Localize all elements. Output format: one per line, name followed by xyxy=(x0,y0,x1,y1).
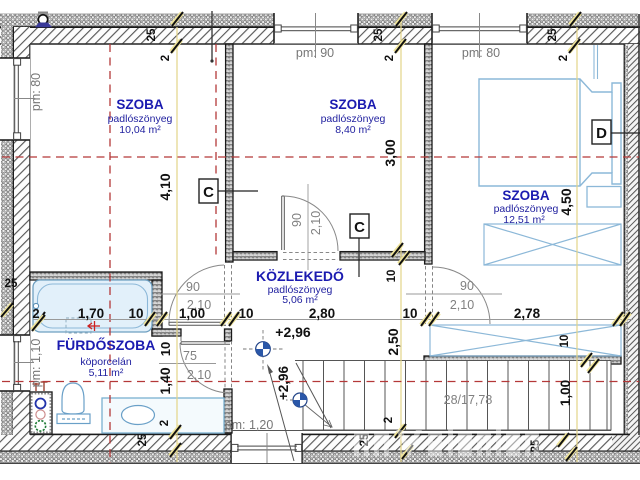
svg-text:4,50: 4,50 xyxy=(558,188,574,215)
svg-text:5,06 m²: 5,06 m² xyxy=(282,294,318,306)
svg-text:+2,96: +2,96 xyxy=(275,324,311,340)
svg-text:SZOBA: SZOBA xyxy=(502,188,550,203)
svg-text:2,10: 2,10 xyxy=(309,211,323,235)
svg-text:10: 10 xyxy=(238,306,253,321)
svg-text:2: 2 xyxy=(558,55,570,61)
svg-text:1,70: 1,70 xyxy=(78,306,104,321)
svg-text:10: 10 xyxy=(158,342,173,356)
svg-text:2,10: 2,10 xyxy=(450,298,474,312)
svg-text:10,04 m²: 10,04 m² xyxy=(119,124,161,136)
svg-text:pm: 1,20: pm: 1,20 xyxy=(225,418,274,432)
svg-text:pm: 80: pm: 80 xyxy=(462,46,500,60)
svg-text:SZOBA: SZOBA xyxy=(116,97,164,112)
svg-text:90: 90 xyxy=(290,213,304,227)
svg-text:75: 75 xyxy=(183,349,197,363)
svg-text:2,78: 2,78 xyxy=(514,306,541,321)
svg-text:4,10: 4,10 xyxy=(157,173,173,200)
svg-text:25: 25 xyxy=(137,433,149,446)
svg-text:pm: 80: pm: 80 xyxy=(29,73,43,111)
svg-text:10: 10 xyxy=(402,306,417,321)
svg-text:SZOBA: SZOBA xyxy=(329,97,377,112)
svg-text:90: 90 xyxy=(186,280,200,294)
svg-text:2,80: 2,80 xyxy=(309,306,335,321)
svg-text:28/17,78: 28/17,78 xyxy=(444,393,493,407)
svg-text:2,50: 2,50 xyxy=(385,328,401,355)
svg-text:+2,96: +2,96 xyxy=(276,365,291,400)
svg-text:10: 10 xyxy=(386,270,398,283)
svg-text:2,10: 2,10 xyxy=(187,368,211,382)
svg-text:KÖZLEKEDŐ: KÖZLEKEDŐ xyxy=(256,267,344,284)
svg-text:12,51 m²: 12,51 m² xyxy=(503,214,545,226)
svg-text:pm: 1,10: pm: 1,10 xyxy=(29,339,43,388)
svg-text:25: 25 xyxy=(547,28,559,41)
svg-text:5,11 m²: 5,11 m² xyxy=(89,367,124,379)
svg-text:1,40: 1,40 xyxy=(157,367,173,394)
svg-text:1,00: 1,00 xyxy=(558,380,573,406)
svg-text:C: C xyxy=(203,184,214,201)
svg-text:8,40 m²: 8,40 m² xyxy=(335,124,371,136)
svg-text:pm: 90: pm: 90 xyxy=(296,46,334,60)
svg-text:2: 2 xyxy=(159,420,171,426)
svg-text:2: 2 xyxy=(384,55,396,61)
svg-text:2: 2 xyxy=(32,306,39,321)
svg-text:D: D xyxy=(596,125,607,142)
svg-text:1,00: 1,00 xyxy=(179,306,205,321)
svg-text:3,00: 3,00 xyxy=(382,139,398,166)
svg-text:C: C xyxy=(354,219,365,236)
svg-text:25: 25 xyxy=(5,278,18,290)
svg-text:2: 2 xyxy=(383,417,395,423)
svg-text:FÜRDŐSZOBA: FÜRDŐSZOBA xyxy=(57,336,156,353)
svg-text:2: 2 xyxy=(160,55,172,61)
svg-text:25: 25 xyxy=(373,28,385,41)
svg-text:10: 10 xyxy=(559,335,571,348)
svg-text:25: 25 xyxy=(146,28,158,41)
svg-text:90: 90 xyxy=(460,279,474,293)
svg-text:10: 10 xyxy=(128,306,143,321)
